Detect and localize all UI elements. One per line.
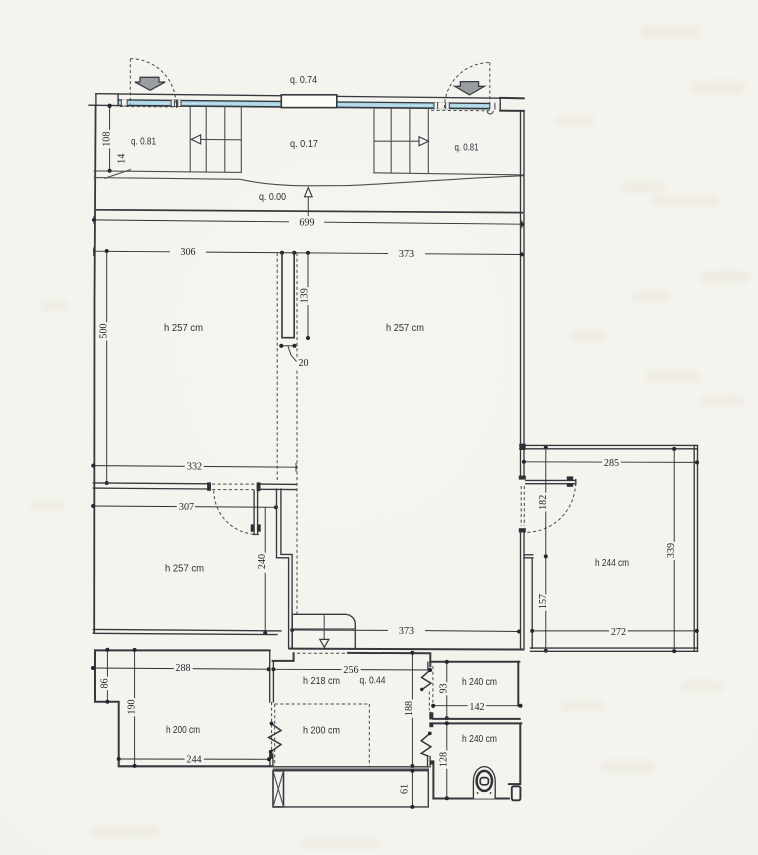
svg-text:h 200 cm: h 200 cm bbox=[303, 726, 340, 737]
svg-text:244: 244 bbox=[186, 755, 201, 766]
svg-text:288: 288 bbox=[175, 663, 190, 674]
svg-text:500: 500 bbox=[99, 323, 110, 338]
svg-text:306: 306 bbox=[180, 247, 195, 258]
svg-text:373: 373 bbox=[399, 249, 414, 260]
svg-text:93: 93 bbox=[439, 683, 450, 693]
svg-text:h 257 cm: h 257 cm bbox=[386, 323, 424, 334]
svg-text:q. 0.81: q. 0.81 bbox=[455, 143, 479, 154]
svg-text:699: 699 bbox=[299, 218, 314, 229]
svg-text:285: 285 bbox=[604, 458, 619, 469]
svg-text:190: 190 bbox=[126, 699, 137, 714]
svg-text:157: 157 bbox=[538, 594, 549, 609]
svg-text:h 257 cm: h 257 cm bbox=[164, 323, 203, 334]
svg-text:373: 373 bbox=[399, 626, 414, 637]
svg-text:256: 256 bbox=[343, 665, 358, 676]
svg-text:188: 188 bbox=[404, 701, 415, 716]
svg-text:20: 20 bbox=[298, 358, 308, 369]
svg-text:61: 61 bbox=[400, 784, 411, 794]
svg-text:q. 0.00: q. 0.00 bbox=[259, 192, 286, 203]
svg-text:q. 0.44: q. 0.44 bbox=[360, 676, 386, 687]
svg-text:h 244 cm: h 244 cm bbox=[595, 558, 629, 569]
svg-text:q. 0.17: q. 0.17 bbox=[290, 139, 318, 150]
svg-text:339: 339 bbox=[666, 543, 677, 558]
svg-text:h 218 cm: h 218 cm bbox=[303, 676, 340, 687]
svg-text:307: 307 bbox=[179, 502, 194, 513]
svg-text:h 240 cm: h 240 cm bbox=[462, 677, 497, 688]
svg-text:h 257 cm: h 257 cm bbox=[165, 564, 204, 575]
svg-text:332: 332 bbox=[187, 462, 202, 473]
svg-text:272: 272 bbox=[611, 627, 626, 638]
svg-text:108: 108 bbox=[101, 132, 112, 147]
svg-text:142: 142 bbox=[469, 702, 484, 713]
svg-text:h 200 cm: h 200 cm bbox=[166, 725, 200, 736]
svg-text:h 240 cm: h 240 cm bbox=[462, 734, 497, 745]
svg-text:q. 0.81: q. 0.81 bbox=[131, 137, 156, 148]
svg-text:128: 128 bbox=[439, 752, 450, 767]
svg-text:q. 0.74: q. 0.74 bbox=[290, 75, 317, 86]
svg-text:86: 86 bbox=[99, 678, 110, 688]
svg-text:14: 14 bbox=[117, 154, 128, 164]
svg-text:240: 240 bbox=[257, 554, 268, 569]
svg-text:139: 139 bbox=[300, 288, 311, 303]
svg-text:182: 182 bbox=[538, 495, 549, 510]
